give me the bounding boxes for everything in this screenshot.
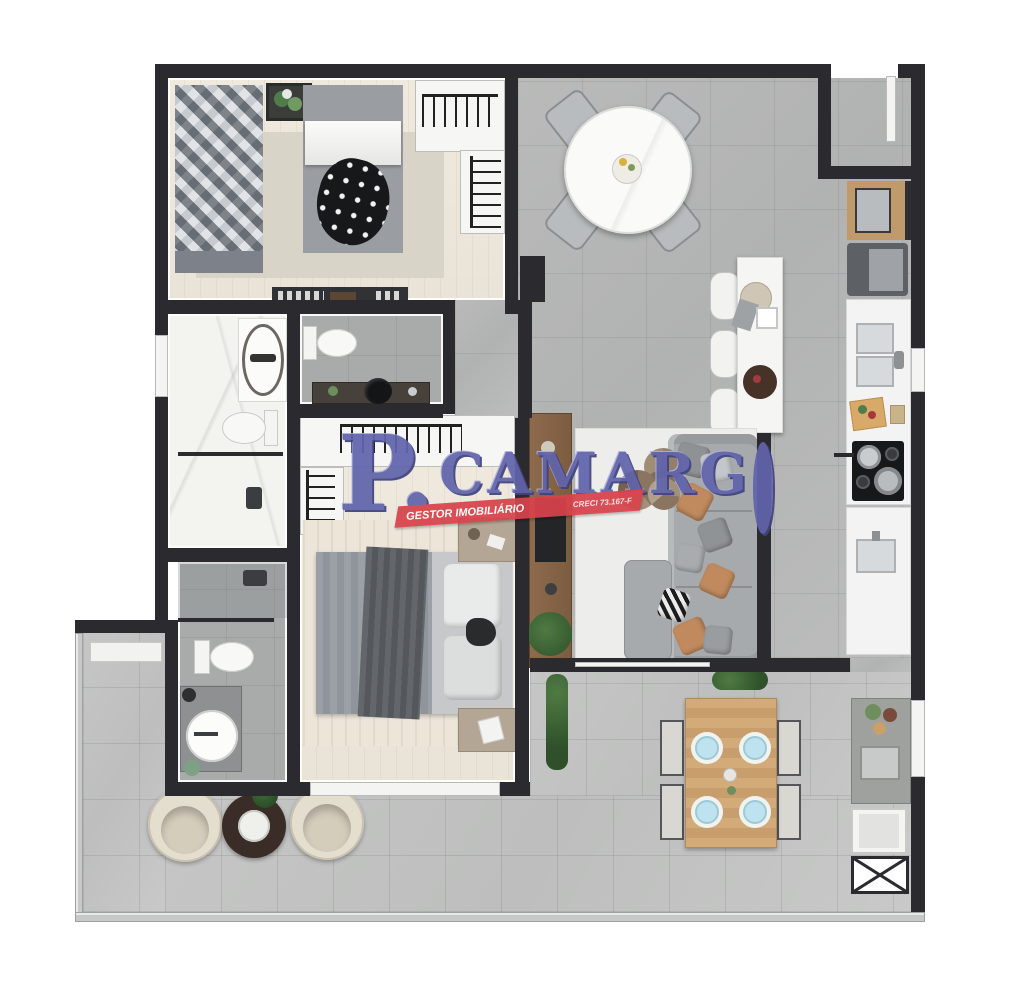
wall-top [155,64,818,78]
cooktop [852,441,904,501]
nightstand-top [458,518,518,562]
sofa-pillow-8 [703,625,734,656]
wall-terrace-step [75,620,168,633]
wall-sofa-back [757,433,771,669]
gourmet-cabinet [851,808,907,854]
bath2-vanity [180,686,242,772]
terrace-coffee-table [222,794,286,858]
wall-entry-partition [818,64,831,178]
entrance-door-leaf [886,76,896,142]
master-bed [316,552,512,714]
coffee-pouf-3 [648,478,680,510]
sofa-pillow-2 [699,449,735,485]
toilet-bath1 [222,408,280,450]
sliding-door-living [575,662,710,667]
shower-head-bath2 [243,570,267,586]
shower-fixture-bath1 [246,487,262,509]
window-gourmet [911,700,925,777]
wall-right-mid [911,392,925,700]
dining-table-round [564,106,692,234]
wall-lavatory-right [443,314,455,414]
living-floor-plant [528,612,572,656]
door-bathroom-1 [155,335,168,397]
wall-bath1-lavatory [287,314,300,560]
wall-master-living [515,418,529,788]
wall-master-terrace-left [165,782,310,796]
lavatory-vanity [312,382,430,404]
utility-shaft [851,856,909,894]
gourmet-chair-r2 [777,784,801,840]
armchair-right [290,786,364,860]
railing-bottom [75,912,925,922]
gourmet-chair-r1 [777,720,801,776]
closet-rack-horizontal [422,94,498,127]
railing-left [75,633,83,915]
nightstand-bottom [458,708,520,752]
sofa-pillow-5 [674,542,706,574]
window-kitchen [911,348,925,392]
double-bed [303,85,403,253]
wall-bedroom1-dining [505,78,518,314]
wall-bath2-master [287,562,300,796]
wall-bath1-bottom [168,548,300,562]
gourmet-chair-l2 [660,784,684,840]
wall-master-terrace-right [500,782,530,796]
wall-lavatory-bottom [300,404,443,418]
breakfast-island [737,257,783,433]
wall-entry-bottom [818,166,911,179]
shower-glass-bath1 [178,452,283,456]
floor-terrace-left [83,633,165,912]
closet-rack-vertical [470,156,501,228]
floor-hallway [455,300,518,418]
freestanding-tub [242,324,284,396]
gourmet-counter [851,698,911,804]
terrace-plants-top [712,670,768,690]
wall-hall-dining [518,300,532,418]
refrigerator [847,243,908,296]
wall-right-upper [911,64,925,348]
wall-bedroom1-bottom [168,300,455,314]
shower-glass-bath2 [178,618,274,622]
kitchen-counter-2 [846,507,911,655]
gourmet-table [685,698,777,848]
kitchen-wood-cabinet [847,181,911,240]
wall-terrace-inner [165,620,178,796]
toilet-lavatory [303,326,357,360]
terrace-bench [90,642,162,662]
hall-console [520,256,545,302]
gourmet-chair-l1 [660,720,684,776]
armchair-left [148,788,222,862]
single-bed [175,85,263,273]
floor-plan: P. CAMARG GESTOR IMOBILIÁRIO CRECI 73.16… [0,0,1024,981]
shower-area-bath2 [178,562,287,618]
island-stool-2 [710,330,740,378]
master-rack-horizontal [340,424,462,453]
wall-right-lower [911,777,925,912]
terrace-hedge [546,674,568,770]
window-master-terrace [310,782,500,796]
toilet-bath2 [194,638,256,678]
